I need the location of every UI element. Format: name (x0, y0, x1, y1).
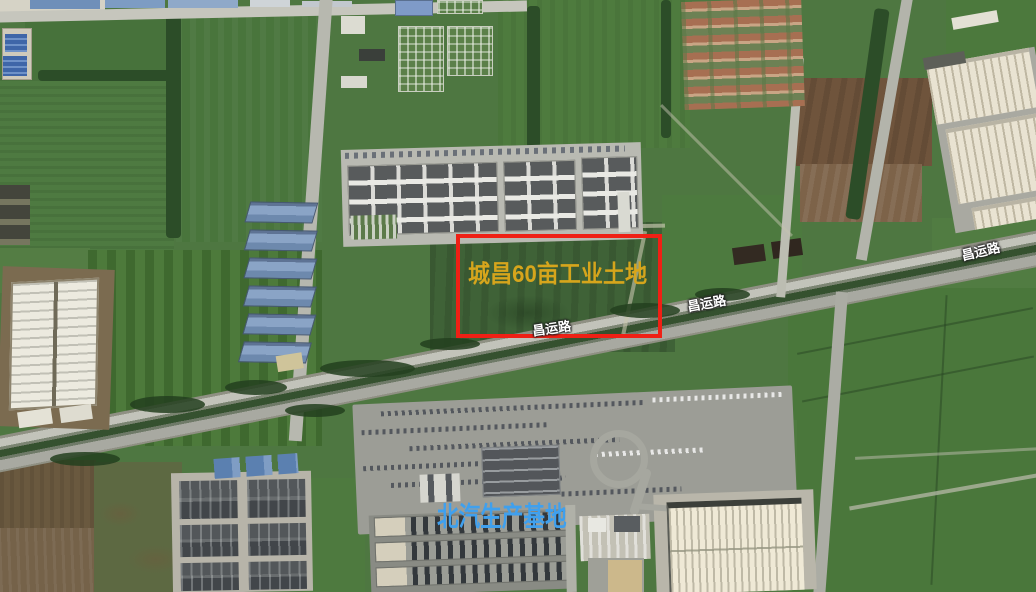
building-roof (341, 16, 365, 34)
field-patch (25, 16, 175, 78)
building-roof (276, 352, 304, 372)
nursery-plot (437, 0, 483, 14)
village-houses (681, 0, 805, 110)
factory-parking-lot (351, 215, 398, 240)
tree-clump (420, 338, 480, 350)
dark-warehouse (247, 479, 306, 518)
poi-name-label: 北汽生产基地 (437, 495, 567, 534)
tree-clump (225, 380, 287, 395)
greenhouse-roof (243, 285, 317, 307)
factory-roof-row (375, 536, 571, 563)
warehouse-bottom-right (666, 498, 804, 592)
field-patch (94, 462, 182, 592)
dark-structure-row (0, 185, 30, 245)
factory-roof-row (375, 561, 571, 588)
warehouse-roof (945, 112, 1036, 204)
greenhouse-roof (244, 201, 318, 223)
parked-vehicles-row (362, 422, 547, 435)
greenhouse-roof (244, 229, 318, 251)
blue-roof-strip (105, 0, 165, 8)
building-roof (617, 192, 630, 232)
parcel-annotation-label: 城昌60亩工业土地 (468, 254, 652, 289)
solar-panel-array (481, 445, 561, 498)
dark-warehouse (181, 562, 239, 591)
warehouse-yard (171, 471, 313, 592)
building-roof (608, 560, 642, 592)
tree-line (661, 0, 671, 138)
dark-warehouse (249, 561, 307, 590)
greenhouse-roof (243, 257, 317, 279)
building-roof (614, 516, 640, 532)
dark-warehouse (179, 480, 238, 519)
solar-panel (3, 56, 27, 76)
service-road (565, 505, 577, 592)
tree-clump (50, 452, 120, 466)
nursery-plot (398, 26, 444, 92)
parked-vehicles-row (381, 400, 646, 417)
field-patch-brown (0, 528, 102, 592)
factory-roof-block (503, 160, 577, 232)
building-roof (341, 76, 367, 88)
factory-complex (341, 142, 643, 247)
building-roof (250, 0, 290, 7)
field-patch-brown (0, 460, 96, 532)
tree-clump (320, 360, 415, 377)
blue-roof-strip (168, 0, 238, 8)
warehouse-left (9, 278, 99, 411)
parked-vehicles-row (652, 392, 782, 403)
dark-warehouse (248, 523, 307, 556)
satellite-map-canvas[interactable]: 城昌60亩工业土地 昌运路 昌运路 昌运路 北汽生产基地 (0, 0, 1036, 592)
dark-structure (359, 49, 385, 61)
greenhouse-cluster (234, 201, 327, 379)
tree-clump (130, 396, 205, 413)
dark-warehouse (180, 524, 239, 557)
building-roof (588, 518, 606, 532)
blue-roof-strip (30, 0, 100, 9)
tree-line (166, 14, 181, 238)
blue-roof-building (395, 0, 433, 16)
tree-line (527, 6, 540, 148)
warehouse-cluster-right (926, 47, 1036, 234)
nursery-plot (447, 26, 493, 76)
tree-clump (285, 404, 345, 417)
tree-line (38, 70, 180, 81)
greenhouse-roof (242, 313, 316, 335)
solar-panel (5, 34, 27, 52)
